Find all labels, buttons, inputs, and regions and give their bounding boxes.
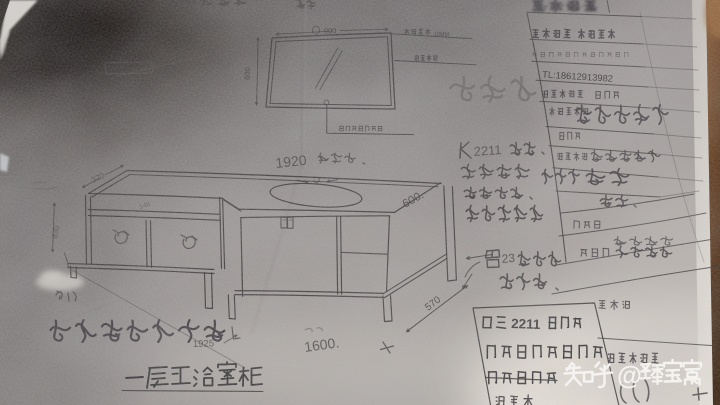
svg-text:@: @ bbox=[617, 363, 642, 391]
